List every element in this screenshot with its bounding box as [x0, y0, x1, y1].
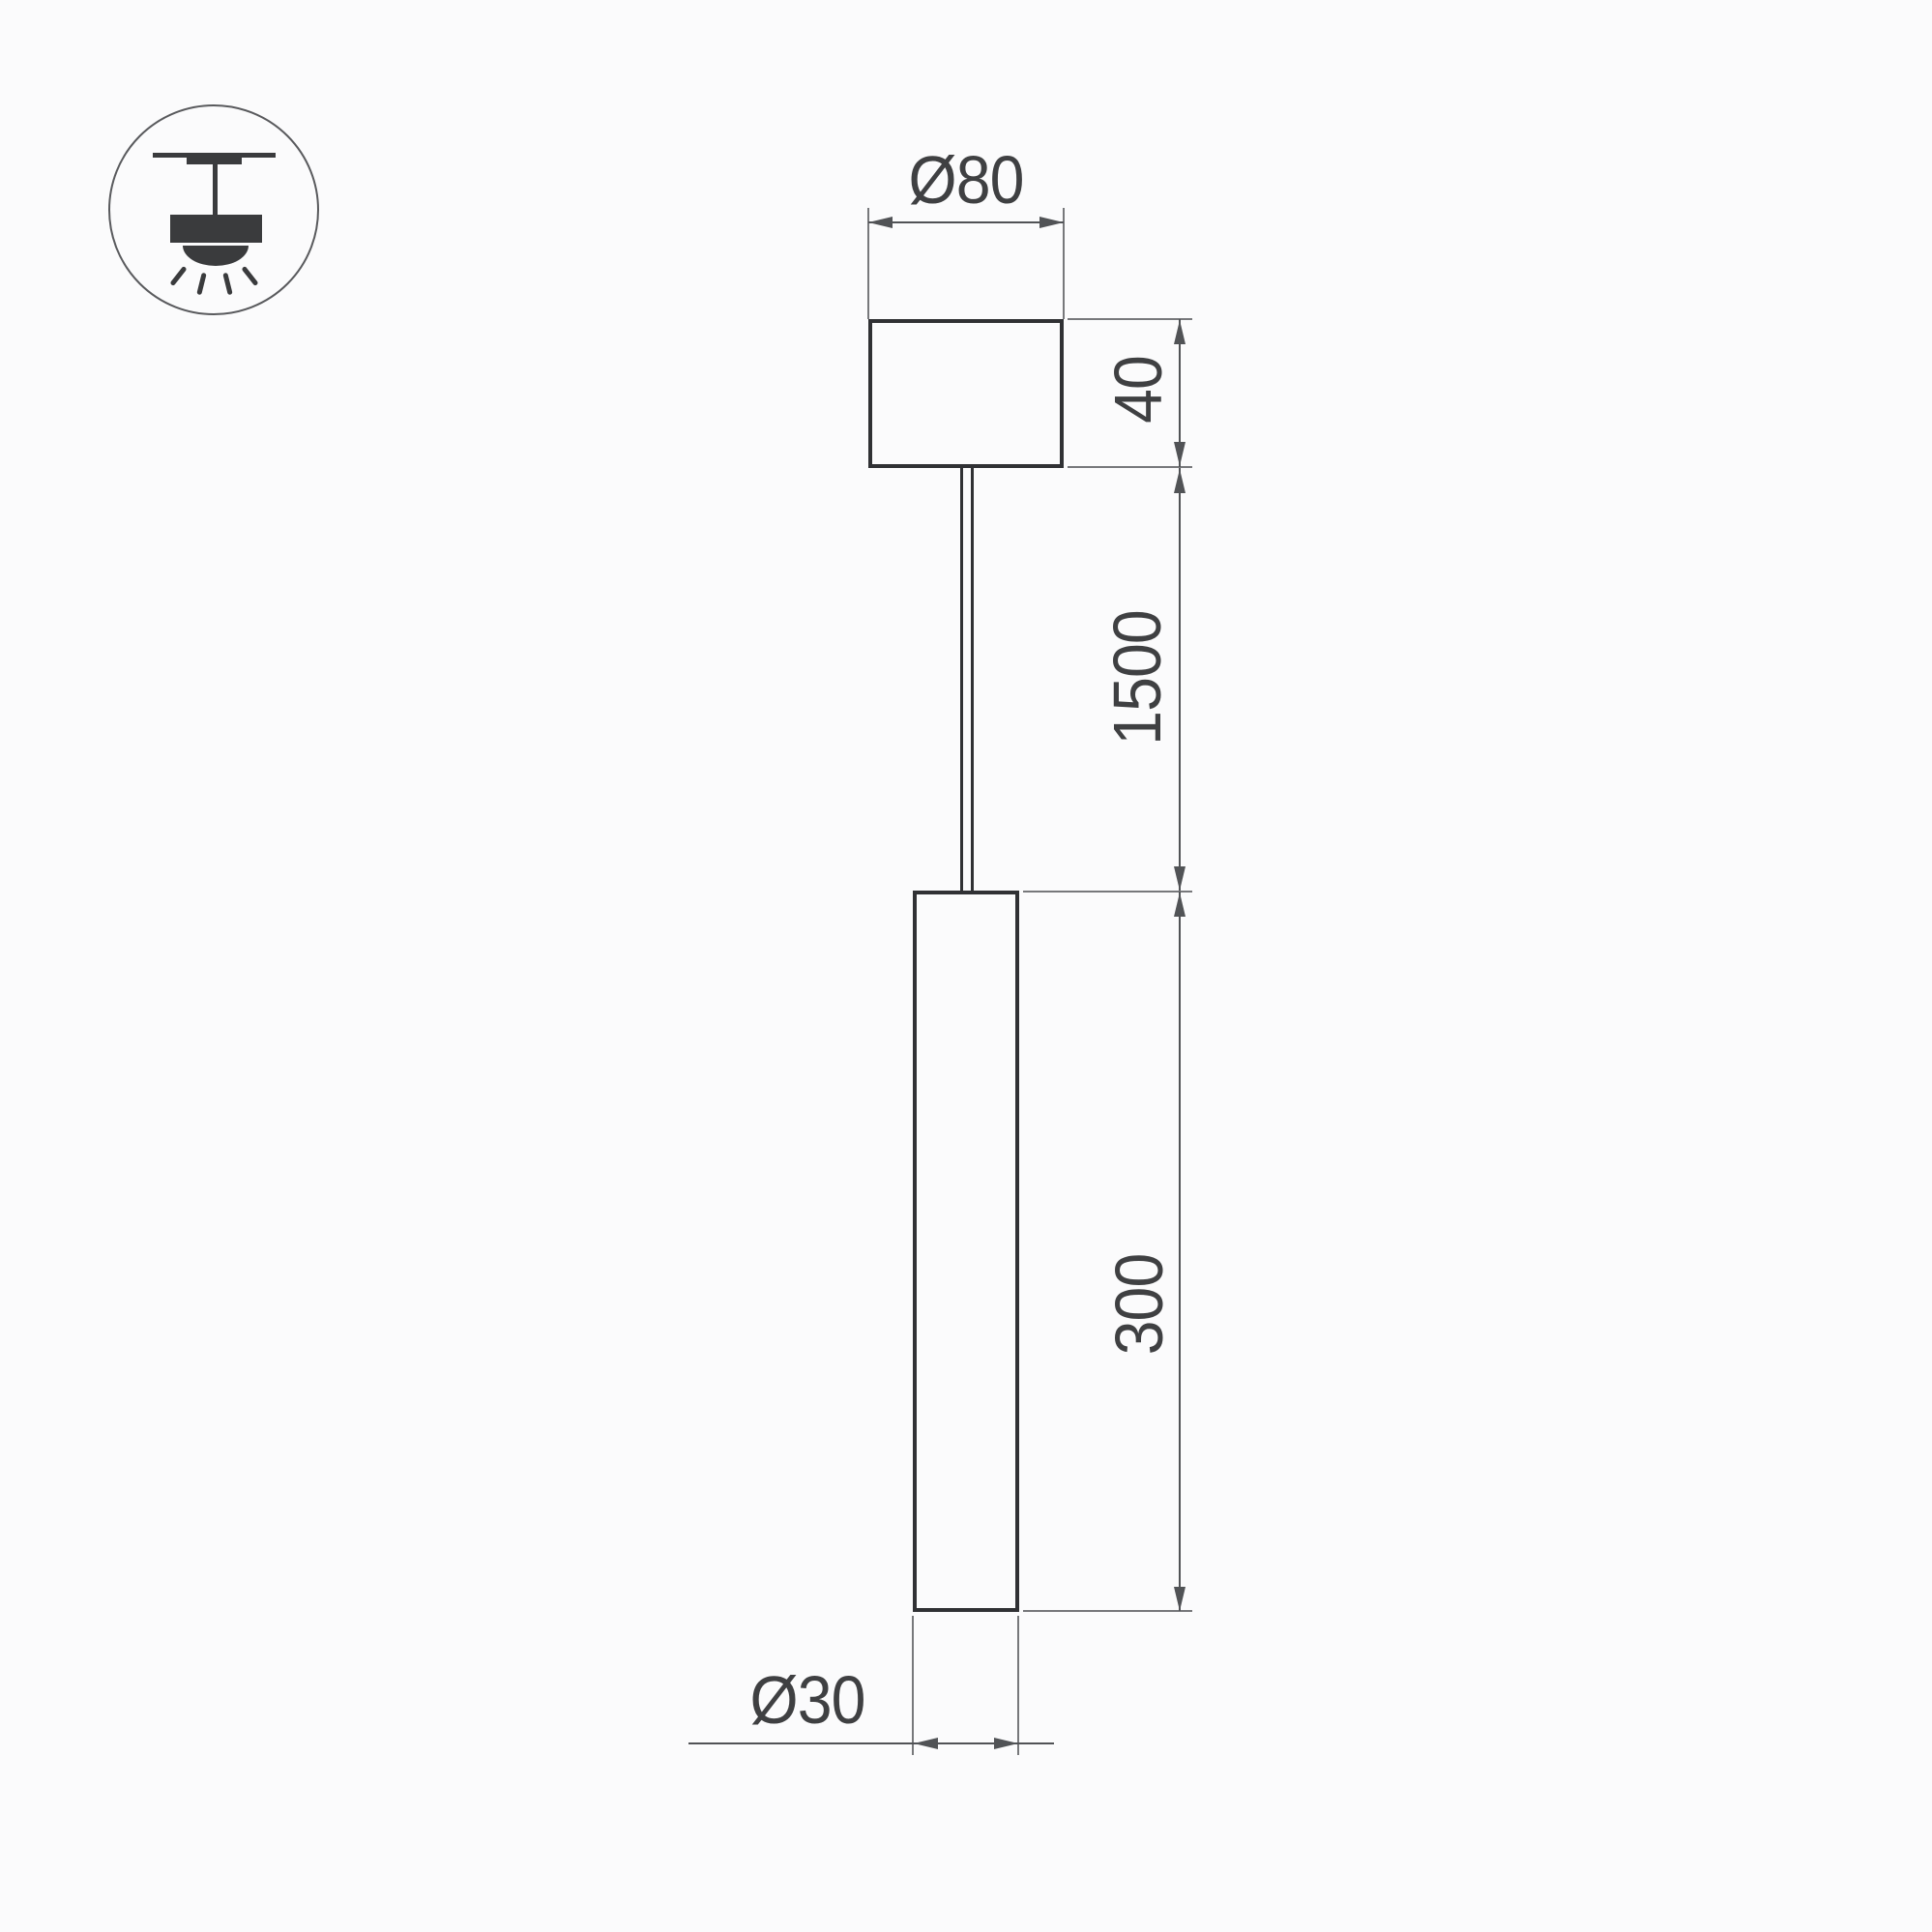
arrowhead-up-icon — [1174, 469, 1186, 493]
dimension-line — [868, 221, 1064, 223]
extension-line — [1017, 1616, 1019, 1755]
dimension-line — [1179, 468, 1181, 892]
arrowhead-up-icon — [1174, 893, 1186, 917]
pendant-lamp-icon — [108, 104, 319, 315]
tube-outline — [913, 891, 1019, 1612]
arrowhead-right-icon — [994, 1738, 1018, 1749]
dimension-line — [1179, 892, 1181, 1611]
canopy-outline — [868, 319, 1064, 468]
pendant-rod-icon — [213, 160, 218, 218]
dimension-label: Ø30 — [750, 1666, 865, 1734]
extension-line — [1023, 1610, 1192, 1612]
arrowhead-down-icon — [1174, 1587, 1186, 1611]
arrowhead-right-icon — [1039, 217, 1064, 228]
arrowhead-down-icon — [1174, 866, 1186, 891]
dimension-label: 40 — [1104, 356, 1172, 424]
arrowhead-left-icon — [914, 1738, 938, 1749]
dimension-label: 1500 — [1103, 610, 1171, 746]
suspension-wire — [960, 467, 974, 893]
light-dome-icon — [183, 246, 249, 266]
light-ray-icon — [169, 266, 187, 286]
light-ray-icon — [241, 266, 258, 286]
light-ray-icon — [196, 273, 206, 296]
arrowhead-left-icon — [868, 217, 893, 228]
arrowhead-down-icon — [1174, 442, 1186, 466]
technical-drawing-canvas: Ø80 40 1500 300 Ø30 — [0, 0, 1932, 1932]
dimension-label: Ø80 — [909, 146, 1024, 214]
arrowhead-up-icon — [1174, 320, 1186, 344]
light-ray-icon — [222, 273, 232, 296]
extension-line — [1023, 891, 1192, 893]
dimension-label: 300 — [1105, 1254, 1173, 1356]
lamp-body-icon — [170, 215, 262, 243]
extension-line — [912, 1616, 914, 1755]
extension-line — [1068, 466, 1192, 468]
